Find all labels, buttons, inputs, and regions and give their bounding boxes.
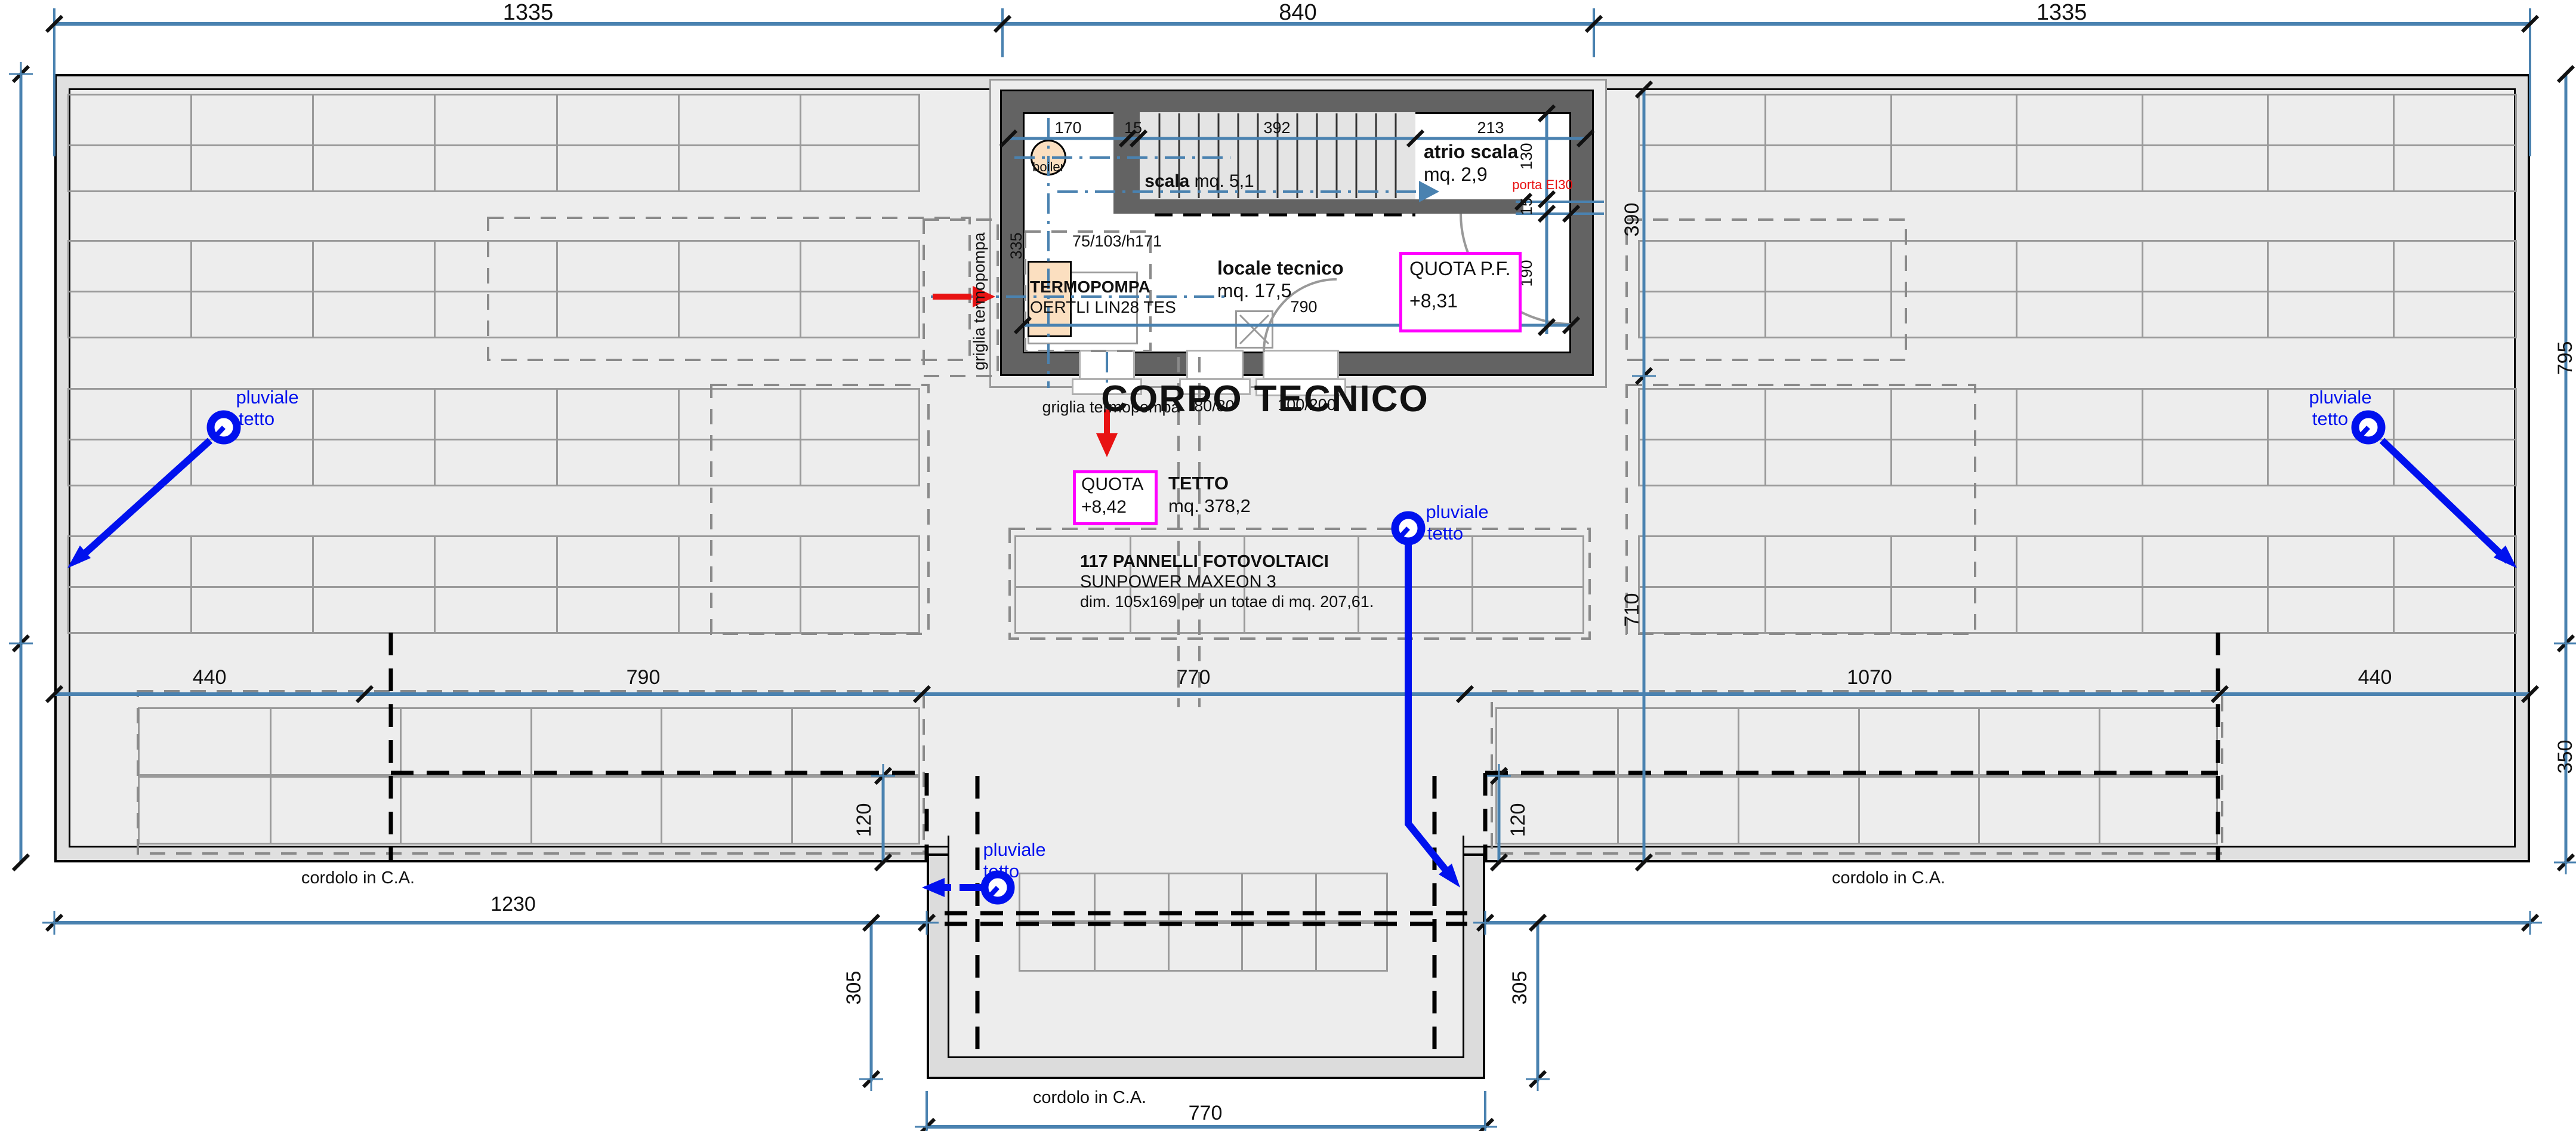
pv-panel-row bbox=[1019, 922, 1388, 972]
griglia-termopompa-vertical-label: griglia termopompa bbox=[971, 232, 988, 370]
pluviale-left-label-2: tetto bbox=[239, 409, 274, 429]
pluviale-right-label-2: tetto bbox=[2312, 409, 2348, 429]
boiler-label: boiler bbox=[1032, 160, 1065, 174]
dim-170: 170 bbox=[1054, 119, 1081, 136]
corpo-tecnico-title: CORPO TECNICO bbox=[1101, 380, 1429, 418]
pv-panel-row bbox=[67, 535, 920, 634]
dim-710: 710 bbox=[1622, 593, 1643, 627]
dim-top-1335-left: 1335 bbox=[503, 1, 554, 25]
wall-opening-8080 bbox=[1186, 350, 1244, 380]
dim-350-right: 350 bbox=[2555, 740, 2576, 774]
dim-790-room: 790 bbox=[1290, 298, 1317, 315]
dim-390: 390 bbox=[1622, 203, 1643, 237]
dim-770-bottom: 770 bbox=[1189, 1103, 1223, 1124]
pv-panel-row bbox=[1638, 94, 2517, 192]
quota-pf-label-1: QUOTA P.F. bbox=[1409, 259, 1511, 279]
stair-bottom-wall bbox=[1113, 199, 1523, 214]
floor-drain bbox=[1235, 310, 1273, 349]
dim-mid-1070: 1070 bbox=[1847, 667, 1892, 689]
pv-note-line-3: dim. 105x169 per un totae di mq. 207,61. bbox=[1080, 593, 1374, 610]
pv-panel-row bbox=[138, 707, 920, 776]
dim-120-right: 120 bbox=[1508, 803, 1529, 837]
dim-15a: 15 bbox=[1124, 119, 1142, 136]
pv-panel-row bbox=[1638, 535, 2517, 634]
dim-305-left: 305 bbox=[844, 971, 865, 1005]
quota-pf-label-2: +8,31 bbox=[1409, 291, 1458, 312]
pluviale-bottom-label-1: pluviale bbox=[983, 840, 1045, 860]
dim-335: 335 bbox=[1008, 232, 1025, 259]
dim-795-right: 795 bbox=[2555, 341, 2576, 375]
locale-tecnico-label-1: locale tecnico bbox=[1217, 258, 1344, 279]
pv-note-line-2: SUNPOWER MAXEON 3 bbox=[1080, 573, 1276, 591]
pv-panel-row bbox=[67, 94, 920, 192]
dim-305-right: 305 bbox=[1510, 971, 1531, 1005]
dim-15b: 15 bbox=[1518, 198, 1535, 215]
pv-panel-row bbox=[1019, 873, 1388, 922]
atrio-label-1: atrio scala bbox=[1424, 142, 1518, 162]
dim-mid-440b: 440 bbox=[2358, 667, 2392, 689]
dim-130: 130 bbox=[1518, 143, 1535, 170]
dim-mid-790: 790 bbox=[627, 667, 661, 689]
termopompa-label-1: TERMOPOMPA bbox=[1030, 278, 1150, 295]
termopompa-label-2: OERTLI LIN28 TES bbox=[1030, 298, 1176, 316]
dim-120-left: 120 bbox=[854, 803, 875, 837]
pluviale-left-label-1: pluviale bbox=[236, 388, 298, 408]
pv-panel-row bbox=[138, 776, 920, 845]
pv-panel-row bbox=[1638, 388, 2517, 486]
stair-label: scala mq. 5,1 bbox=[1144, 172, 1254, 191]
locale-tecnico-label-2: mq. 17,5 bbox=[1217, 281, 1292, 301]
wall-opening-griglia bbox=[1079, 350, 1135, 380]
atrio-label-2: mq. 2,9 bbox=[1424, 165, 1488, 185]
dim-1230: 1230 bbox=[490, 894, 536, 916]
tetto-label-1: TETTO bbox=[1168, 474, 1229, 494]
cordolo-right-label: cordolo in C.A. bbox=[1832, 869, 1945, 887]
dim-213: 213 bbox=[1477, 119, 1504, 136]
dim-mid-440a: 440 bbox=[193, 667, 227, 689]
pv-panel-row bbox=[67, 388, 920, 486]
tetto-label-2: mq. 378,2 bbox=[1168, 497, 1251, 516]
pv-panel-row bbox=[1495, 776, 2218, 845]
dim-392: 392 bbox=[1263, 119, 1290, 136]
porta-ei30-label: porta EI30 bbox=[1512, 178, 1573, 192]
pv-panel-row bbox=[67, 240, 920, 338]
wall-opening-100200 bbox=[1263, 350, 1339, 380]
pv-panel-row bbox=[1495, 707, 2218, 776]
pluviale-right-label-1: pluviale bbox=[2309, 388, 2371, 408]
termopompa-size: 75/103/h171 bbox=[1072, 233, 1162, 249]
dim-top-840: 840 bbox=[1279, 1, 1316, 25]
cordolo-bottom-label: cordolo in C.A. bbox=[1033, 1089, 1146, 1107]
pluviale-mid-label-1: pluviale bbox=[1426, 503, 1488, 522]
pv-panel-row bbox=[1638, 240, 2517, 338]
quota-label-1: QUOTA bbox=[1081, 475, 1143, 494]
dim-mid-770: 770 bbox=[1177, 667, 1211, 689]
cordolo-left-label: cordolo in C.A. bbox=[301, 869, 415, 887]
pluviale-mid-label-2: tetto bbox=[1427, 524, 1463, 544]
pv-note-line-1: 117 PANNELLI FOTOVOLTAICI bbox=[1080, 553, 1329, 571]
quota-label-2: +8,42 bbox=[1081, 498, 1127, 517]
roof-plan-drawing: { "top_dims": {"left":"1335","center":"8… bbox=[0, 0, 2576, 1131]
dim-top-1335-right: 1335 bbox=[2037, 1, 2087, 25]
pluviale-bottom-label-2: tetto bbox=[983, 862, 1019, 882]
